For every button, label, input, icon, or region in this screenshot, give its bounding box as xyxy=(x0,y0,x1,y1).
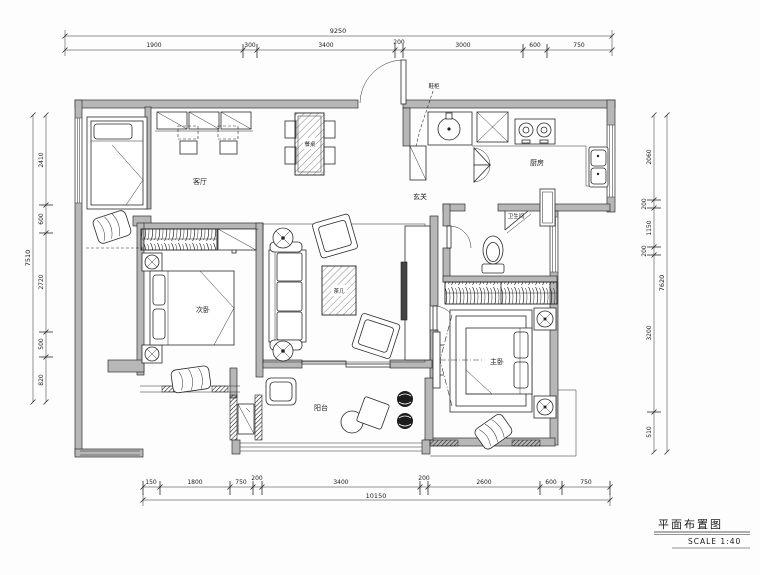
dim-right-seg-3: 200 xyxy=(641,245,648,257)
bedroom2-nightstand-bottom xyxy=(142,345,162,363)
coffee-table: 茶几 xyxy=(322,266,356,315)
dim-right-seg-4: 3200 xyxy=(646,325,653,340)
kitchen-sink xyxy=(589,147,608,187)
dimensions-top: 9250 1900 300 3400 200 3000 600 750 xyxy=(63,27,615,58)
title-block: 平面布置图 SCALE 1:40 xyxy=(654,518,750,548)
dim-bot-seg-8: 750 xyxy=(580,479,592,486)
shoe-cabinet xyxy=(410,146,426,180)
dim-right-total: 7620 xyxy=(658,275,666,292)
bedroom2-label: 次卧 xyxy=(196,305,210,314)
kitchen-label: 厨房 xyxy=(530,158,544,167)
dim-right-seg-2: 1150 xyxy=(646,220,653,235)
dim-bot-seg-1: 1800 xyxy=(187,479,202,486)
stove xyxy=(515,119,555,144)
window-balcony xyxy=(232,440,430,454)
dim-bot-seg-5: 200 xyxy=(418,475,430,482)
living-label: 客厅 xyxy=(193,177,207,186)
bath-vanity xyxy=(540,189,555,226)
dim-left-seg-2: 2720 xyxy=(38,274,45,289)
bedroom2-bay-lounge xyxy=(171,365,212,393)
drawing-scale: SCALE 1:40 xyxy=(688,537,741,546)
drawing-title: 平面布置图 xyxy=(658,518,723,531)
armchair-bottom xyxy=(351,313,400,360)
foyer-label: 玄关 xyxy=(413,192,427,201)
kitchen-door xyxy=(474,148,490,182)
dim-bot-seg-6: 2600 xyxy=(476,479,491,486)
dim-right-seg-0: 2060 xyxy=(646,149,653,164)
master-nightstand-bottom xyxy=(534,396,556,418)
dim-top-seg-3: 200 xyxy=(393,39,405,46)
dim-left-total: 7510 xyxy=(24,250,32,267)
balcony-armchair xyxy=(266,378,296,405)
dim-bot-seg-4: 3400 xyxy=(333,479,348,486)
dim-bot-seg-2: 750 xyxy=(235,479,247,486)
dim-top-seg-2: 3400 xyxy=(318,42,333,49)
plant-bottom xyxy=(397,413,413,429)
window-kitchen-right xyxy=(608,125,615,197)
master-nightstand-top xyxy=(534,308,556,330)
washing-machine xyxy=(238,404,254,434)
dim-top-seg-1: 300 xyxy=(244,42,256,49)
balcony-label: 阳台 xyxy=(314,403,328,412)
bathroom-door xyxy=(447,226,471,248)
dim-left-seg-0: 2410 xyxy=(38,152,45,167)
sofa xyxy=(269,242,306,350)
dim-left-seg-4: 820 xyxy=(38,374,45,386)
master-label: 主卧 xyxy=(490,357,504,366)
master-wardrobe xyxy=(445,282,557,304)
fridge xyxy=(477,112,508,142)
dim-top-seg-6: 750 xyxy=(573,42,585,49)
hall-chairs xyxy=(178,126,238,154)
dimensions-left: 7510 2410 600 2720 500 820 xyxy=(24,113,53,405)
bedroom2-nightstand-top xyxy=(142,253,162,271)
floor-lamp-top xyxy=(273,228,293,248)
plant-top xyxy=(397,391,413,407)
dimensions-right: 2060 200 1150 200 3200 510 7620 xyxy=(641,113,670,455)
dim-top-seg-5: 600 xyxy=(529,42,541,49)
floor-plan-canvas: 9250 1900 300 3400 200 3000 600 750 xyxy=(0,0,760,575)
dim-left-seg-3: 500 xyxy=(38,338,45,350)
dim-top-seg-0: 1900 xyxy=(146,42,161,49)
bathroom-label: 卫生间 xyxy=(508,212,525,220)
dim-right-seg-5: 510 xyxy=(646,426,653,438)
dining-table-label: 餐桌 xyxy=(304,140,316,148)
toilet xyxy=(482,236,504,273)
dim-left-seg-1: 600 xyxy=(38,213,45,225)
study-armchair xyxy=(92,209,132,244)
bedroom2-bed xyxy=(150,271,234,345)
dim-bot-seg-0: 150 xyxy=(145,479,157,486)
coffee-table-label: 茶几 xyxy=(333,287,345,295)
dim-top-seg-4: 3000 xyxy=(455,42,470,49)
dim-bot-seg-3: 200 xyxy=(251,475,263,482)
entry-basin xyxy=(428,112,472,145)
dining-table: 餐桌 xyxy=(285,113,335,175)
floor-lamp-bottom xyxy=(273,341,293,361)
single-bed xyxy=(87,117,147,209)
window-left xyxy=(76,118,82,203)
dim-top-total: 9250 xyxy=(330,27,347,35)
dim-right-seg-1: 200 xyxy=(641,198,648,210)
entry-door xyxy=(360,60,406,104)
bedroom2-wardrobe xyxy=(141,229,256,250)
armchair-top xyxy=(312,213,358,258)
dimensions-bottom: 150 1800 750 200 3400 200 2600 600 750 1… xyxy=(141,475,613,506)
floor-plan-page: 9250 1900 300 3400 200 3000 600 750 xyxy=(0,0,760,575)
dim-bot-seg-7: 600 xyxy=(545,479,557,486)
dim-bot-total: 10150 xyxy=(366,492,387,500)
tv-cabinet xyxy=(401,226,430,360)
shoe-cabinet-note-text: 鞋柜 xyxy=(428,82,440,90)
